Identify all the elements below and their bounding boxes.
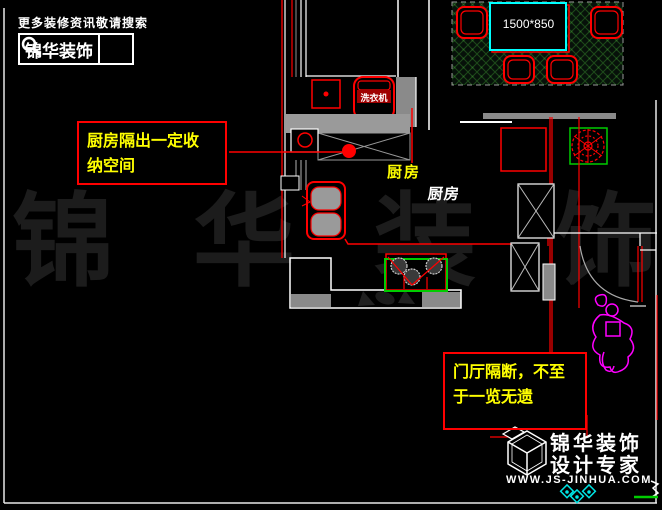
table-size-label: 1500*850: [490, 17, 567, 31]
appliance-box: [312, 80, 340, 108]
wall-box: [281, 176, 299, 190]
hall-note-line1: 门厅隔断，不至: [453, 361, 577, 386]
kitchen-note: 厨房隔出一定收 纳空间: [77, 121, 227, 185]
diamond-decor: [561, 485, 596, 503]
column-x-box: [511, 243, 539, 291]
kitchen-note-line1: 厨房隔出一定收: [87, 130, 217, 155]
gas-stove: [385, 254, 447, 291]
search-icon: [100, 35, 132, 63]
chair: [457, 7, 487, 38]
chair: [591, 7, 622, 38]
kitchen-wall-red: [345, 239, 513, 244]
person-figure: [593, 295, 634, 373]
footer-website: WWW.JS-JINHUA.COM: [506, 474, 652, 486]
hall-note-line2: 于一览无遗: [453, 386, 577, 411]
plant-symbol: [570, 128, 607, 164]
kitchen-label-yellow: 厨房: [387, 161, 421, 182]
brand-box: 锦华装饰: [18, 33, 134, 65]
kitchen-sink: [302, 182, 345, 239]
search-hint: 更多装修资讯敬请搜索: [18, 14, 148, 31]
cad-floorplan-image: 锦 华 装 饰: [0, 0, 662, 510]
dining-area: [452, 2, 623, 85]
hall-note: 门厅隔断，不至 于一览无遗: [443, 352, 587, 430]
cabinet-x-box: [318, 133, 410, 160]
red-square-fixture: [501, 128, 546, 171]
kitchen-label-white: 厨房: [427, 183, 461, 204]
chair: [504, 56, 534, 83]
wall-segment: [543, 264, 555, 300]
door-arc: [580, 246, 638, 302]
chair: [547, 56, 577, 83]
red-marker-dot: [342, 144, 356, 158]
cube-logo-icon: [503, 427, 546, 475]
scale-figure: [651, 481, 658, 497]
vent-circle-box: [291, 129, 318, 152]
column-x-box: [518, 184, 554, 238]
kitchen-note-line2: 纳空间: [87, 155, 217, 180]
washing-machine-label: 洗衣机: [356, 91, 392, 104]
